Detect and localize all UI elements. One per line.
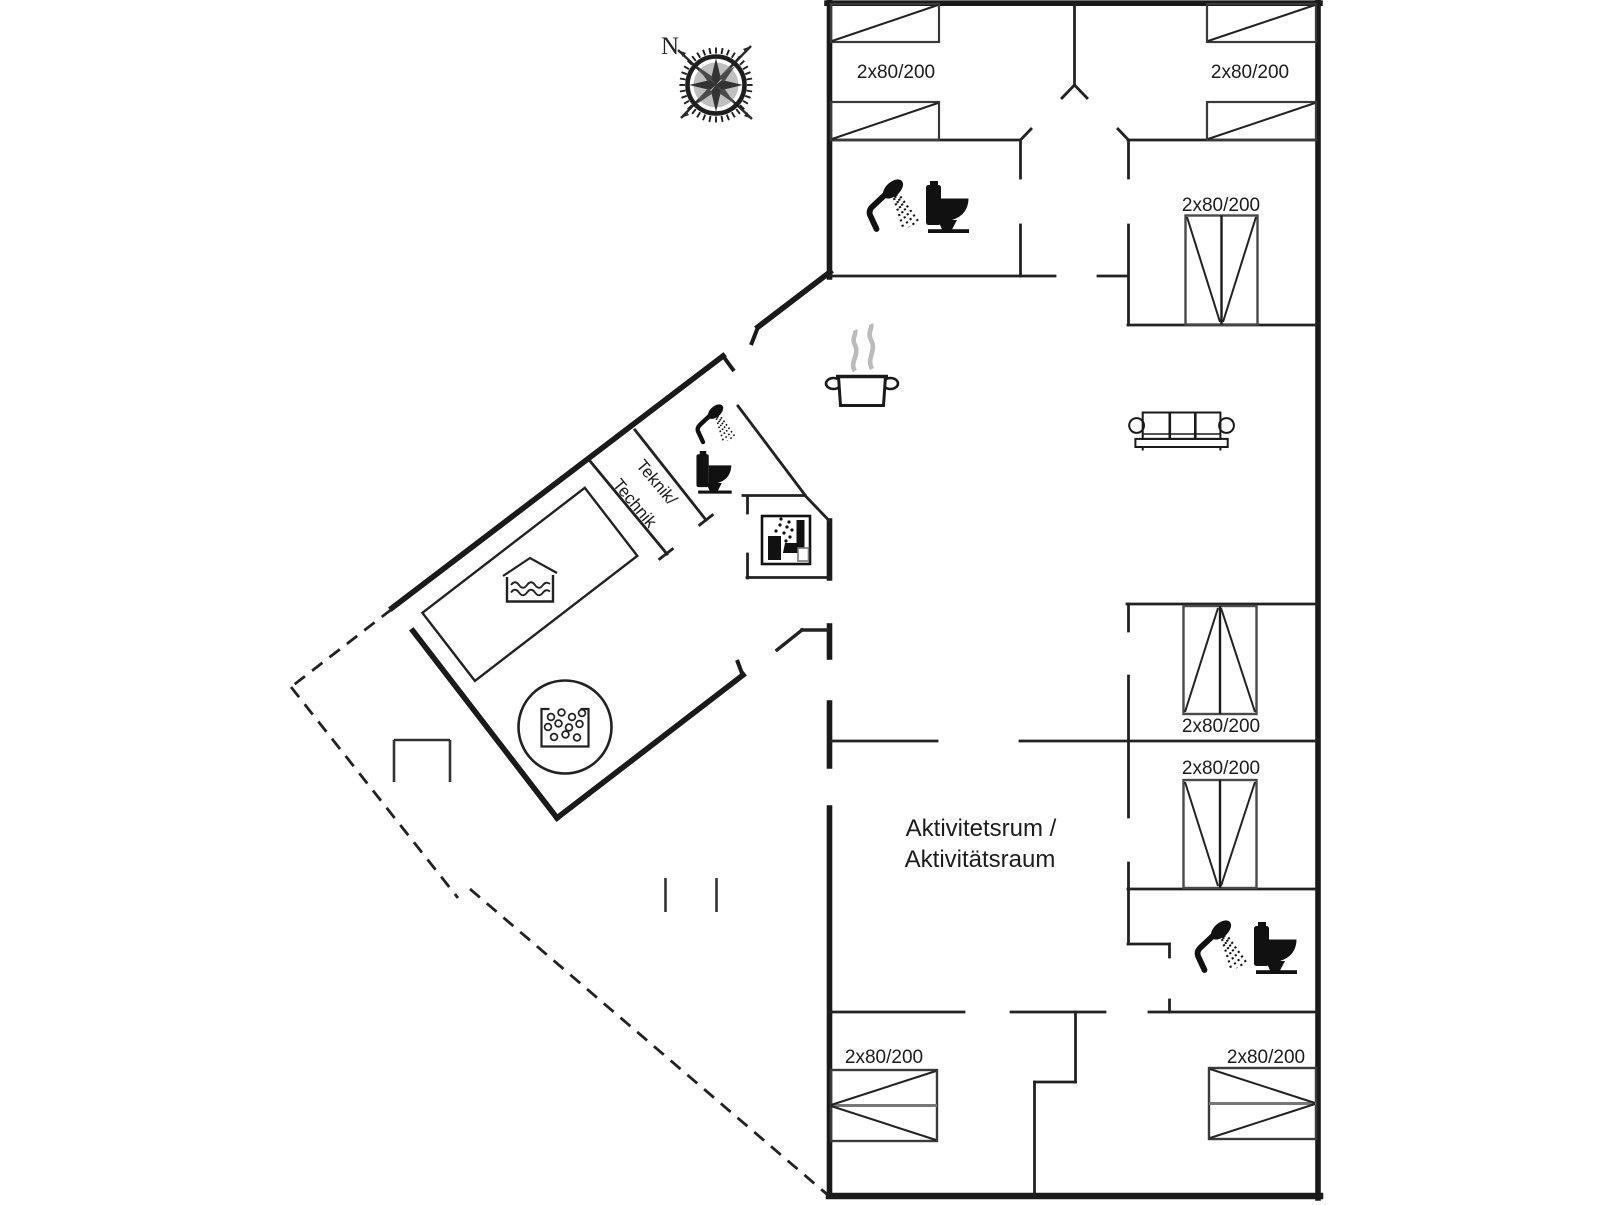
svg-text:2x80/200: 2x80/200 <box>845 1047 923 1068</box>
svg-text:Aktivitetsrum /: Aktivitetsrum / <box>906 815 1057 842</box>
svg-text:2x80/200: 2x80/200 <box>1211 62 1289 83</box>
svg-text:N: N <box>661 33 679 60</box>
svg-text:2x80/200: 2x80/200 <box>857 62 935 83</box>
svg-text:2x80/200: 2x80/200 <box>1182 195 1260 216</box>
svg-text:2x80/200: 2x80/200 <box>1182 716 1260 737</box>
svg-text:2x80/200: 2x80/200 <box>1227 1047 1305 1068</box>
svg-text:Aktivitätsraum: Aktivitätsraum <box>905 846 1056 873</box>
svg-text:2x80/200: 2x80/200 <box>1182 758 1260 779</box>
